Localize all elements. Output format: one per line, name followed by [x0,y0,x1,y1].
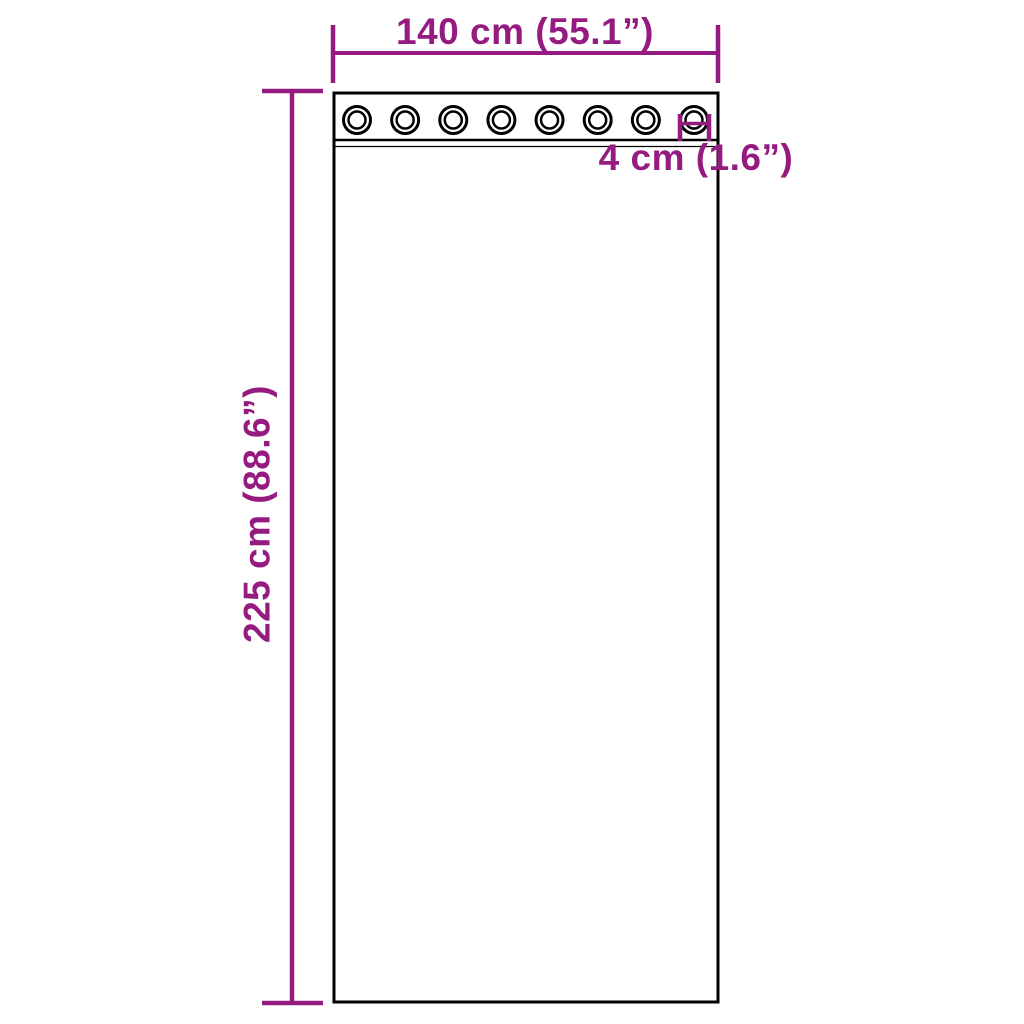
height-dimension-label: 225 cm (88.6”) [237,385,278,643]
curtain-panel-outline [334,93,718,1002]
curtain-dimension-diagram: 140 cm (55.1”) 225 cm (88.6”) 4 cm (1.6”… [0,0,1024,1024]
width-dimension: 140 cm (55.1”) [333,11,718,83]
grommet-dimension-label: 4 cm (1.6”) [599,137,794,178]
curtain-panel [334,93,718,1002]
height-dimension: 225 cm (88.6”) [237,91,324,1003]
width-dimension-label: 140 cm (55.1”) [396,11,654,52]
